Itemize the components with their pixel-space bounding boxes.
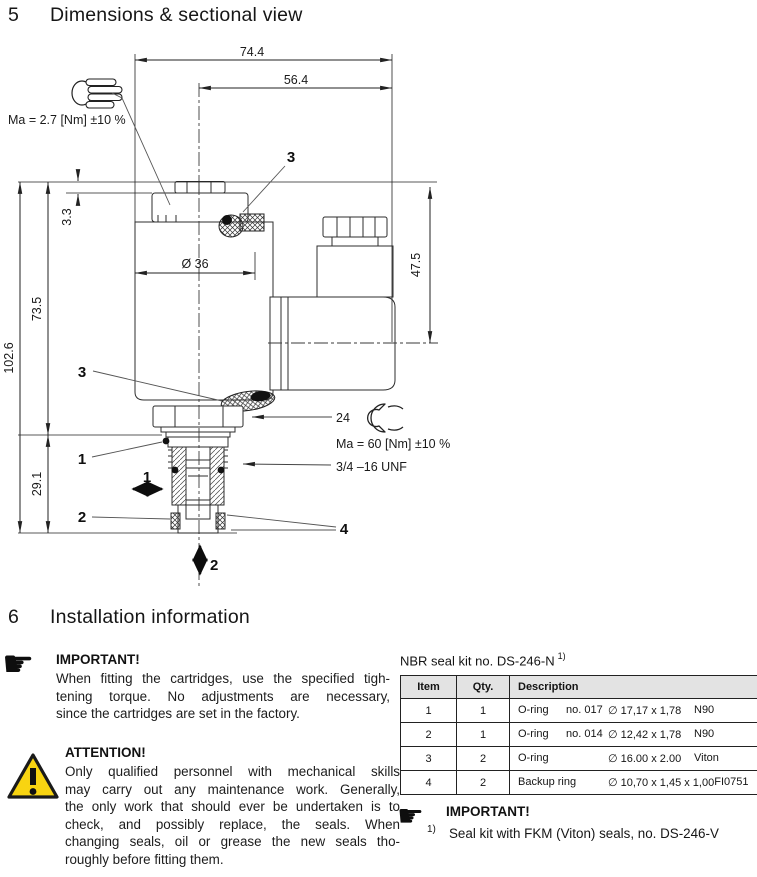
important-fitting-line: tening torque. No adjustments are necess… [56, 688, 390, 706]
callout-3-side: 3 [78, 364, 86, 381]
cell-description: O-ring∅ 16.00 x 2.00Viton [509, 747, 756, 770]
section5-title: Dimensions & sectional view [50, 4, 303, 27]
table-row: 1 1 O-ringno. 017∅ 17,17 x 1,78N90 [401, 698, 757, 722]
dim-coil-height: 73.5 [30, 297, 44, 321]
part-no: no. 014 [566, 728, 608, 741]
sectional-view-drawing: 74.4 56.4 3.3 Ø 36 47.5 73.5 102.6 29.1 … [0, 40, 757, 602]
cell-description: Backup ring∅ 10,70 x 1,45 x 1,00FI0751 [509, 771, 756, 794]
dim-cartridge-height: 29.1 [30, 472, 44, 496]
callout-1: 1 [78, 451, 86, 468]
hex-af-label: 24 [336, 411, 350, 425]
section6-number: 6 [8, 606, 50, 629]
important-fitting-body: When fitting the cartridges, use the spe… [56, 670, 390, 723]
table-row: 2 1 O-ringno. 014∅ 12,42 x 1,78N90 [401, 722, 757, 746]
hand-icon [72, 79, 122, 108]
callout-4-leader-a [227, 515, 336, 527]
warning-triangle-icon [6, 752, 60, 801]
cell-qty: 1 [456, 723, 509, 746]
part-name: O-ring [518, 752, 566, 765]
cell-qty: 2 [456, 771, 509, 794]
seal-kit-footnote-ref: 1) [558, 651, 566, 661]
part-name: Backup ring [518, 776, 566, 789]
pointing-hand-icon: ☛ [2, 646, 34, 682]
connector [270, 217, 395, 390]
part-size: ∅ 16.00 x 2.00 [608, 752, 681, 765]
thread-leader [243, 464, 331, 465]
part-no [566, 752, 608, 765]
wrench-icon [368, 404, 403, 432]
thread-label: 3/4 –16 UNF [336, 460, 407, 474]
hand-leader [112, 93, 170, 205]
attention-line: check, and possibly replace, the seals. … [65, 816, 400, 834]
attention-line: changing seals, oil or grease the new se… [65, 833, 400, 851]
part-material: N90 [694, 704, 750, 717]
part-no [566, 776, 608, 789]
important-fitting-heading: IMPORTANT! [56, 652, 140, 667]
part-size: ∅ 12,42 x 1,78 [608, 728, 681, 741]
part-no: no. 017 [566, 704, 608, 717]
cell-item: 3 [401, 747, 456, 770]
cell-qty: 1 [456, 699, 509, 722]
important-fitting-line: since the cartridges are set in the fact… [56, 705, 390, 723]
hex-nut [153, 406, 243, 437]
part-material: Viton [694, 752, 750, 765]
section5-number: 5 [8, 4, 50, 27]
footnote-text: Seal kit with FKM (Viton) seals, no. DS-… [449, 826, 719, 841]
important-seal-heading: IMPORTANT! [446, 804, 530, 819]
callout-3-top-leader [243, 166, 285, 212]
attention-heading: ATTENTION! [65, 745, 146, 760]
torque-nut-label: Ma = 60 [Nm] ±10 % [336, 437, 450, 451]
dim-connector-height: 47.5 [409, 253, 423, 277]
attention-body: Only qualified personnel with mechanical… [65, 763, 400, 869]
part-size: ∅ 10,70 x 1,45 x 1,00 [608, 776, 714, 789]
port-1-label: 1 [143, 469, 151, 486]
dim-cap-height: 3.3 [60, 208, 74, 225]
part-material: N90 [694, 728, 750, 741]
dim-total-height: 102.6 [2, 342, 16, 373]
seal-kit-header-row: Item Qty. Description [401, 676, 757, 698]
callout-4: 4 [340, 521, 349, 538]
important-fitting-line: When fitting the cartridges, use the spe… [56, 670, 390, 688]
callout-2-leader [92, 517, 170, 519]
callout-1-leader [92, 442, 162, 457]
seal-kit-title: NBR seal kit no. DS-246-N1) [400, 652, 566, 668]
part-material: FI0751 [714, 776, 757, 789]
attention-line: Only qualified personnel with mechanical… [65, 763, 400, 781]
cartridge [168, 437, 228, 533]
important-seal-note: 1) Seal kit with FKM (Viton) seals, no. … [427, 826, 719, 841]
cell-item: 1 [401, 699, 456, 722]
part-size: ∅ 17,17 x 1,78 [608, 704, 681, 717]
part-name: O-ring [518, 704, 566, 717]
port-2-label: 2 [210, 557, 218, 574]
seal-kit-title-text: NBR seal kit no. DS-246-N [400, 653, 555, 668]
dim-upper-width: 56.4 [284, 73, 308, 87]
table-row: 3 2 O-ring∅ 16.00 x 2.00Viton [401, 746, 757, 770]
section6-heading: 6 Installation information [8, 606, 250, 629]
section5-heading: 5 Dimensions & sectional view [8, 4, 303, 27]
col-header-description: Description [509, 676, 756, 698]
dim-total-width: 74.4 [240, 45, 264, 59]
table-row: 4 2 Backup ring∅ 10,70 x 1,45 x 1,00FI07… [401, 770, 757, 794]
seal-kit-table: Item Qty. Description 1 1 O-ringno. 017∅… [400, 675, 757, 795]
cell-qty: 2 [456, 747, 509, 770]
torque-hand-label: Ma = 2.7 [Nm] ±10 % [8, 113, 126, 127]
attention-line: the only work that should ever be undert… [65, 798, 400, 816]
callout-3-top: 3 [287, 149, 295, 166]
cell-item: 2 [401, 723, 456, 746]
footnote-marker: 1) [427, 824, 449, 839]
cell-description: O-ringno. 014∅ 12,42 x 1,78N90 [509, 723, 756, 746]
dim-coil-diameter: Ø 36 [181, 257, 208, 271]
col-header-item: Item [401, 676, 456, 698]
cell-description: O-ringno. 017∅ 17,17 x 1,78N90 [509, 699, 756, 722]
part-name: O-ring [518, 728, 566, 741]
attention-line: roughly before fitting them. [65, 851, 400, 869]
datasheet-page: 5 Dimensions & sectional view [0, 0, 757, 877]
cell-item: 4 [401, 771, 456, 794]
callout-2: 2 [78, 509, 86, 526]
attention-line: may carry out any maintenance work. Gene… [65, 781, 400, 799]
pointing-hand-icon: ☛ [397, 802, 424, 832]
section6-title: Installation information [50, 606, 250, 629]
col-header-qty: Qty. [456, 676, 509, 698]
